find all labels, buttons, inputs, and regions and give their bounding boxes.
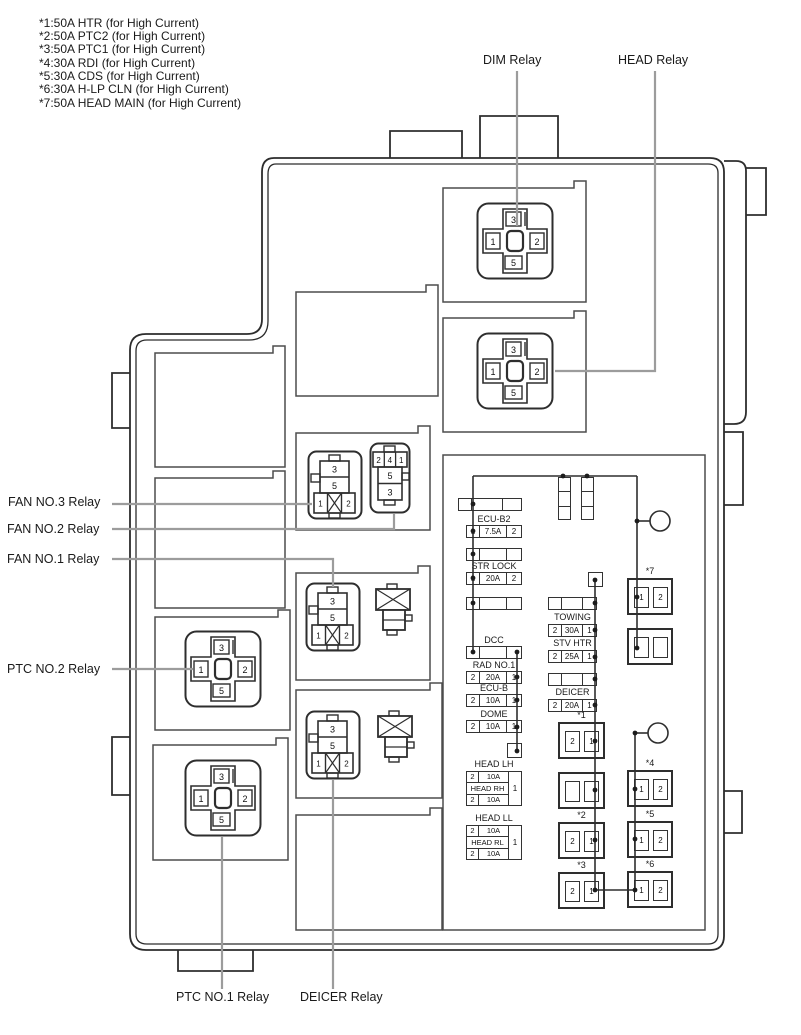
callout-dim-relay: DIM Relay [483, 54, 541, 68]
fuse-label-s2: *2 [558, 811, 605, 820]
fuse-cell: 2 [549, 700, 562, 711]
top-tab-large [480, 116, 558, 158]
fuse-label-ecu-b2: ECU-B2 [466, 515, 522, 524]
fuse-cell: 30A [562, 625, 583, 636]
fuse-cell: 2 [467, 826, 479, 836]
fuse-cell: 2 [653, 779, 668, 800]
fuse-cell [507, 549, 521, 560]
fuse-ecu-b2: 17.5A2 [466, 525, 522, 538]
fuse-label-s3: *3 [558, 861, 605, 870]
fan-no1-relay-socket [305, 582, 361, 652]
fuse-cell: 2 [565, 881, 580, 902]
shared-terminal: 1 [508, 772, 521, 805]
fusible-link-strip [581, 477, 594, 520]
fuse-cell [634, 637, 649, 658]
high-current-fuse-5: 12 [627, 821, 673, 858]
callout-ptc-no2-relay: PTC NO.2 Relay [7, 663, 100, 677]
fuse-cell: 20A [480, 672, 507, 683]
spare-high-current-fuse [627, 628, 673, 665]
fuse-cell: 25A [562, 651, 583, 662]
head-relay-socket [476, 332, 554, 410]
fuse-cell: 1 [583, 651, 596, 662]
fuse-cell [549, 674, 562, 685]
fuse-cell [507, 598, 521, 609]
junction-block [507, 743, 522, 758]
fuse-dome: 210A1 [466, 720, 522, 733]
ptc-no1-relay-socket [184, 759, 262, 837]
fuse-cell [467, 549, 480, 560]
spare-fuse [466, 597, 522, 610]
shared-terminal: 1 [508, 826, 521, 859]
fuse-cell: 10A [480, 721, 507, 732]
fuse-cell: 2 [653, 587, 668, 608]
fuse-towing: 230A1 [548, 624, 597, 637]
fuse-cell: 1 [583, 625, 596, 636]
top-tab-small [390, 131, 462, 158]
high-current-fuse-1: 21 [558, 722, 605, 759]
fuse-cell: 2 [467, 849, 479, 859]
callout-fan-no2-relay: FAN NO.2 Relay [7, 523, 99, 537]
fuse-block-head-lh-rh: 210A HEAD RH 210A 1 [466, 771, 522, 806]
fusible-link-strip [558, 477, 571, 520]
fuse-cell [472, 499, 503, 510]
fuse-cell [480, 647, 507, 658]
fuse-cell: 2 [467, 695, 480, 706]
fuse-cell: 2 [565, 831, 580, 852]
fuse-cell: 2 [467, 795, 479, 805]
fuse-cell: 1 [634, 779, 649, 800]
housing-outline-layer [0, 0, 801, 1035]
legend-line: *6:30A H-LP CLN (for High Current) [39, 83, 229, 96]
spare-fuse [466, 548, 522, 561]
fan-no2-relay-socket [369, 442, 411, 514]
fuse-dcc [466, 646, 522, 659]
fuse-cell [459, 499, 472, 510]
fuse-cell: 1 [467, 526, 480, 537]
fuse-label-s5: *5 [627, 810, 673, 819]
left-tab-lower [112, 737, 130, 795]
dim-relay-socket [476, 202, 554, 280]
fuse-label-head-lh: HEAD LH [466, 760, 522, 769]
fuse-cell: 10A [480, 695, 507, 706]
fuse-cell: 10A [479, 849, 508, 859]
fuse-label-ecu-b: ECU-B [466, 684, 522, 693]
fuse-cell: 20A [480, 573, 507, 584]
fuse-cell: 10A [479, 795, 508, 805]
fuse-cell [507, 647, 521, 658]
bolt-hole-bottom [648, 723, 668, 743]
fuse-row: 210A [467, 826, 508, 837]
fuse-label-head-rl: HEAD RL [467, 837, 508, 848]
high-current-fuse-4: 12 [627, 770, 673, 807]
fuse-cell: 1 [467, 573, 480, 584]
fuse-stv-htr: 225A1 [548, 650, 597, 663]
fuse-row: 210A [467, 772, 508, 783]
fuse-cell [562, 598, 583, 609]
fuse-cell: 10A [479, 772, 508, 782]
fuse-cell: 2 [549, 625, 562, 636]
fuse-cell [503, 499, 521, 510]
spare-fuse [548, 597, 597, 610]
bottom-tab [178, 950, 253, 971]
fuse-cell: 1 [507, 721, 521, 732]
right-strip [724, 161, 746, 424]
connector-symbol-lower [376, 709, 416, 765]
fuse-cell: 1 [634, 880, 649, 901]
fuse-cell [583, 674, 596, 685]
fuse-label-dome: DOME [466, 710, 522, 719]
fuse-ecu-b: 210A1 [466, 694, 522, 707]
connector-symbol-upper [374, 582, 414, 638]
right-tab-middle [724, 432, 743, 505]
fuse-cell: 2 [549, 651, 562, 662]
fuse-block-head-ll-rl: 210A HEAD RL 210A 1 [466, 825, 522, 860]
fuse-label-s6: *6 [627, 860, 673, 869]
fan-no3-relay-socket [307, 450, 363, 520]
callout-fan-no1-relay: FAN NO.1 Relay [7, 553, 99, 567]
high-current-fuse-6: 12 [627, 871, 673, 908]
fuse-cell: 1 [634, 587, 649, 608]
fuse-label-s4: *4 [627, 759, 673, 768]
high-current-fuse-3: 21 [558, 872, 605, 909]
fuse-label-head-rh: HEAD RH [467, 783, 508, 794]
fuse-cell: 2 [507, 526, 521, 537]
fuse-cell: 1 [507, 672, 521, 683]
callout-deicer-relay: DEICER Relay [300, 991, 383, 1005]
fuse-cell: 2 [467, 772, 479, 782]
fuse-cell [562, 674, 583, 685]
deicer-relay-socket [305, 710, 361, 780]
fuse-cell: 2 [653, 830, 668, 851]
fuse-cell: 1 [584, 831, 599, 852]
fuse-cell [480, 598, 507, 609]
fuse-box-diagram: 3 1 2 5 3 5 1 2 [0, 0, 801, 1035]
fuse-cell [467, 598, 480, 609]
fuse-label-dcc: DCC [466, 636, 522, 645]
fuse-label-s1: *1 [558, 711, 605, 720]
fuse-label-towing: TOWING [548, 613, 597, 622]
fuse-cell: 10A [479, 826, 508, 836]
fuse-label-s7: *7 [627, 567, 673, 576]
fuse-cell: 1 [584, 881, 599, 902]
fuse-cell: 7.5A [480, 526, 507, 537]
callout-ptc-no1-relay: PTC NO.1 Relay [176, 991, 269, 1005]
spare-fuse [548, 673, 597, 686]
fuse-cell: 2 [565, 731, 580, 752]
ptc-no2-relay-socket [184, 630, 262, 708]
fuse-row: 210A [467, 849, 508, 859]
fuse-cell [565, 781, 580, 802]
fuse-cell: 1 [584, 731, 599, 752]
fuse-cell [467, 647, 480, 658]
callout-head-relay: HEAD Relay [618, 54, 688, 68]
fuse-label-head-ll: HEAD LL [466, 814, 522, 823]
fuse-cell: 2 [507, 573, 521, 584]
high-current-fuse-7: 12 [627, 578, 673, 615]
fuse-cell [549, 598, 562, 609]
fuse-str-lock: 120A2 [466, 572, 522, 585]
head-fuse-rows: 210A HEAD RH 210A [467, 772, 508, 805]
fuse-row: 210A [467, 795, 508, 805]
fuse-label-stv-htr: STV HTR [548, 639, 597, 648]
fuse-cell: 2 [467, 672, 480, 683]
fuse-cell [584, 781, 599, 802]
fuse-cell: 1 [634, 830, 649, 851]
junction-block [588, 572, 603, 587]
legend-line: *7:50A HEAD MAIN (for High Current) [39, 97, 241, 110]
high-current-fuse-2: 21 [558, 822, 605, 859]
right-tab-lower [724, 791, 742, 833]
legend-line: *3:50A PTC1 (for High Current) [39, 43, 205, 56]
head-fuse-rows: 210A HEAD RL 210A [467, 826, 508, 859]
fuse-cell [480, 549, 507, 560]
fuse-cell [583, 598, 596, 609]
fuse-cell: 2 [653, 880, 668, 901]
left-tab-upper [112, 373, 130, 428]
spare-fuse [458, 498, 522, 511]
fuse-cell: 1 [507, 695, 521, 706]
spare-high-current-fuse [558, 772, 605, 809]
callout-fan-no3-relay: FAN NO.3 Relay [8, 496, 100, 510]
fuse-label-rad-no1: RAD NO.1 [466, 661, 522, 670]
right-tab-upper [746, 168, 766, 215]
fuse-cell [653, 637, 668, 658]
fuse-label-deicer: DEICER [548, 688, 597, 697]
fuse-label-str-lock: STR LOCK [464, 562, 524, 571]
bolt-hole-top [650, 511, 670, 531]
fuse-cell: 2 [467, 721, 480, 732]
